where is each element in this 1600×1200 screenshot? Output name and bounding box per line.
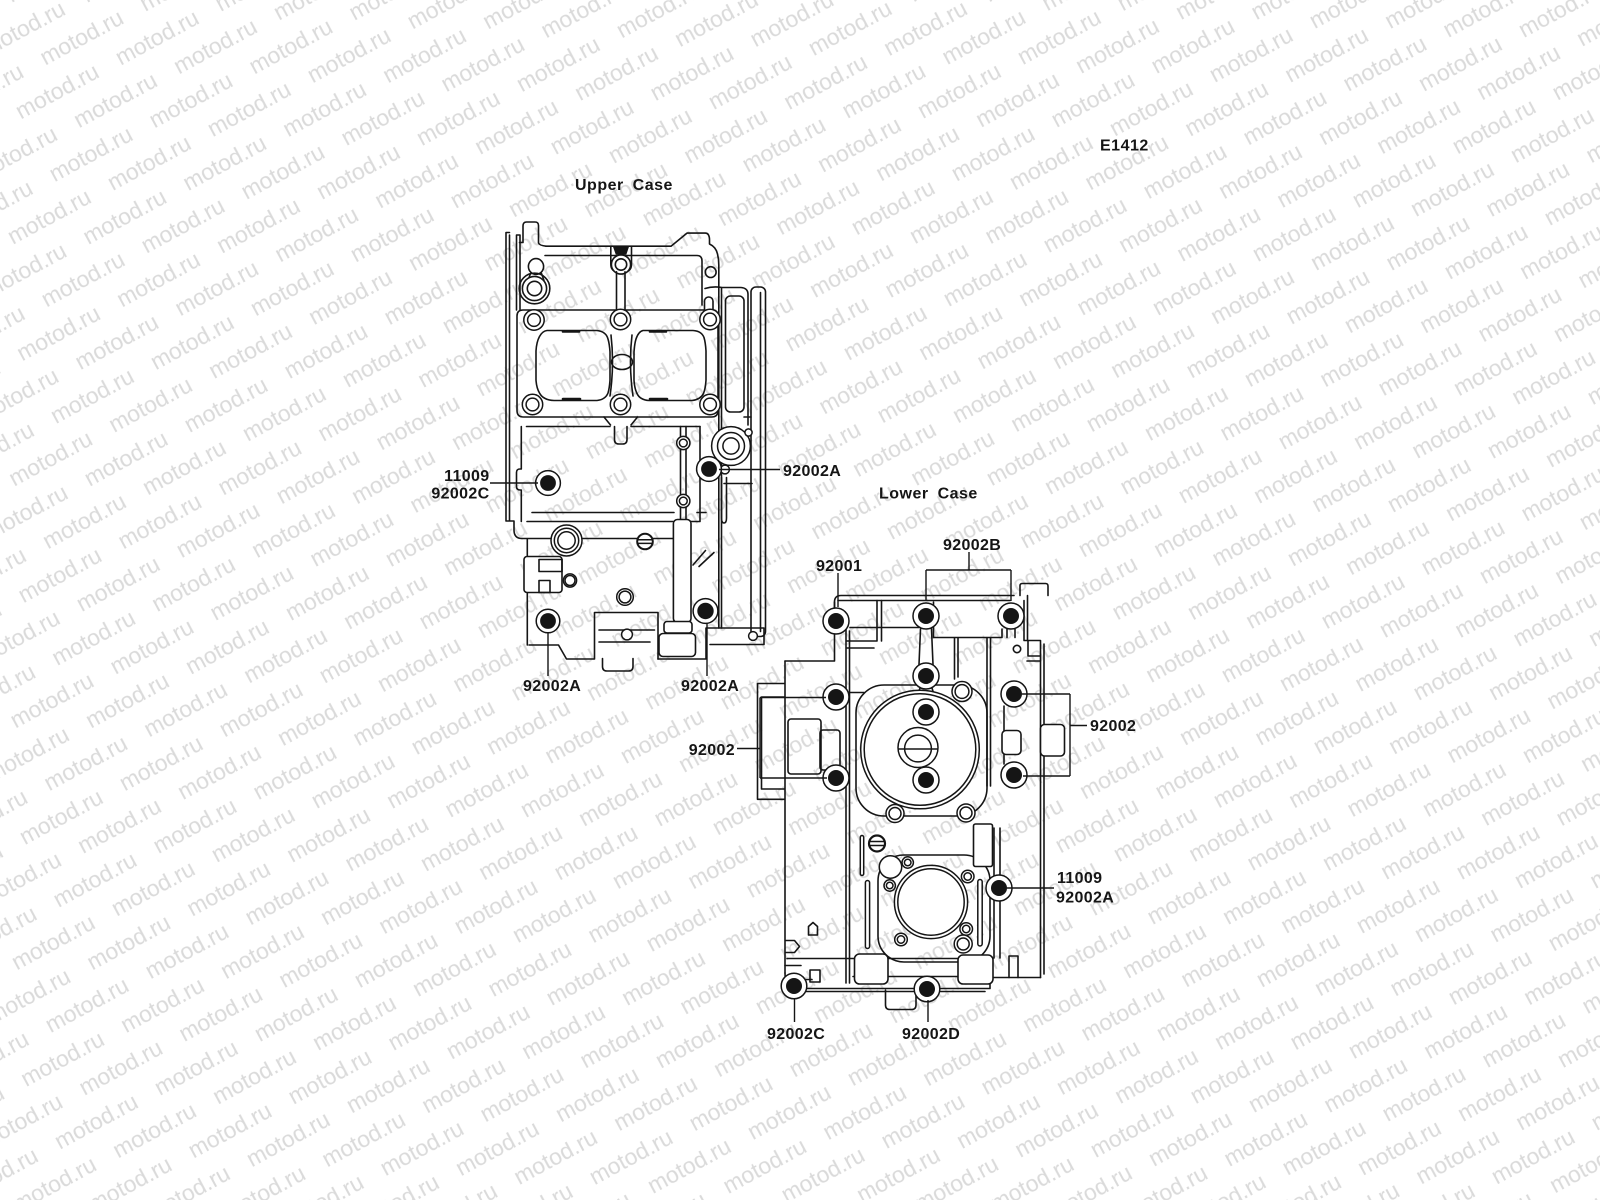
svg-text:92002C: 92002C xyxy=(431,486,489,503)
svg-text:92002C: 92002C xyxy=(767,1026,825,1043)
svg-text:92002A: 92002A xyxy=(681,678,739,695)
svg-text:92001: 92001 xyxy=(816,558,862,575)
svg-text:11009: 11009 xyxy=(1057,870,1102,887)
svg-text:92002B: 92002B xyxy=(943,537,1001,554)
svg-text:92002A: 92002A xyxy=(1056,890,1114,907)
svg-text:92002: 92002 xyxy=(1090,718,1136,735)
svg-text:92002D: 92002D xyxy=(902,1026,960,1043)
svg-text:92002: 92002 xyxy=(689,742,735,759)
svg-text:Upper Case: Upper Case xyxy=(575,177,673,194)
svg-text:92002A: 92002A xyxy=(523,678,581,695)
svg-text:E1412: E1412 xyxy=(1100,138,1149,155)
svg-text:11009: 11009 xyxy=(444,468,489,485)
svg-text:92002A: 92002A xyxy=(783,463,841,480)
svg-text:Lower Case: Lower Case xyxy=(879,486,978,503)
